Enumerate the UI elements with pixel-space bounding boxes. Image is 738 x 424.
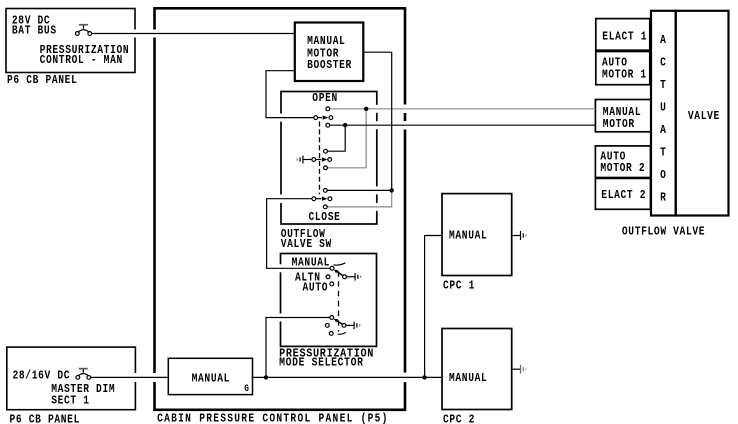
svg-text:O: O	[660, 169, 666, 182]
svg-text:BAT BUS: BAT BUS	[12, 25, 57, 38]
svg-text:VALVE: VALVE	[688, 110, 720, 123]
svg-text:MANUAL: MANUAL	[449, 372, 487, 385]
svg-text:CLOSE: CLOSE	[309, 211, 341, 224]
svg-text:P6 CB PANEL: P6 CB PANEL	[10, 414, 80, 424]
svg-text:CPC 1: CPC 1	[443, 280, 475, 293]
svg-text:BOOSTER: BOOSTER	[307, 59, 352, 72]
svg-text:MOTOR: MOTOR	[603, 118, 635, 131]
svg-text:R: R	[660, 191, 666, 204]
svg-text:MOTOR 1: MOTOR 1	[602, 69, 647, 82]
svg-text:CONTROL - MAN: CONTROL - MAN	[40, 54, 123, 67]
svg-text:CABIN PRESSURE CONTROL PANEL (: CABIN PRESSURE CONTROL PANEL (P5)	[157, 412, 388, 424]
svg-text:OUTFLOW VALVE: OUTFLOW VALVE	[622, 226, 705, 239]
svg-text:A: A	[660, 124, 666, 137]
svg-text:MANUAL: MANUAL	[192, 373, 230, 386]
svg-text:ELACT 2: ELACT 2	[601, 189, 646, 202]
svg-text:MODE SELECTOR: MODE SELECTOR	[279, 357, 364, 370]
svg-text:A: A	[660, 34, 666, 47]
svg-text:G: G	[244, 383, 249, 394]
svg-text:C: C	[660, 56, 666, 69]
svg-text:P6 CB PANEL: P6 CB PANEL	[7, 74, 77, 87]
svg-text:SECT 1: SECT 1	[51, 395, 89, 408]
svg-text:T: T	[660, 146, 666, 159]
svg-text:VALVE SW: VALVE SW	[281, 238, 332, 251]
svg-text:U: U	[660, 101, 666, 114]
svg-text:ELACT 1: ELACT 1	[602, 31, 647, 44]
svg-text:MANUAL: MANUAL	[449, 230, 487, 243]
svg-text:CPC 2: CPC 2	[443, 414, 475, 424]
svg-text:T: T	[660, 79, 666, 92]
svg-text:MOTOR 2: MOTOR 2	[600, 162, 645, 175]
svg-text:MANUAL: MANUAL	[292, 256, 330, 269]
svg-text:OPEN: OPEN	[312, 92, 338, 105]
svg-text:AUTO: AUTO	[303, 282, 329, 295]
svg-text:28/16V DC: 28/16V DC	[13, 370, 71, 383]
